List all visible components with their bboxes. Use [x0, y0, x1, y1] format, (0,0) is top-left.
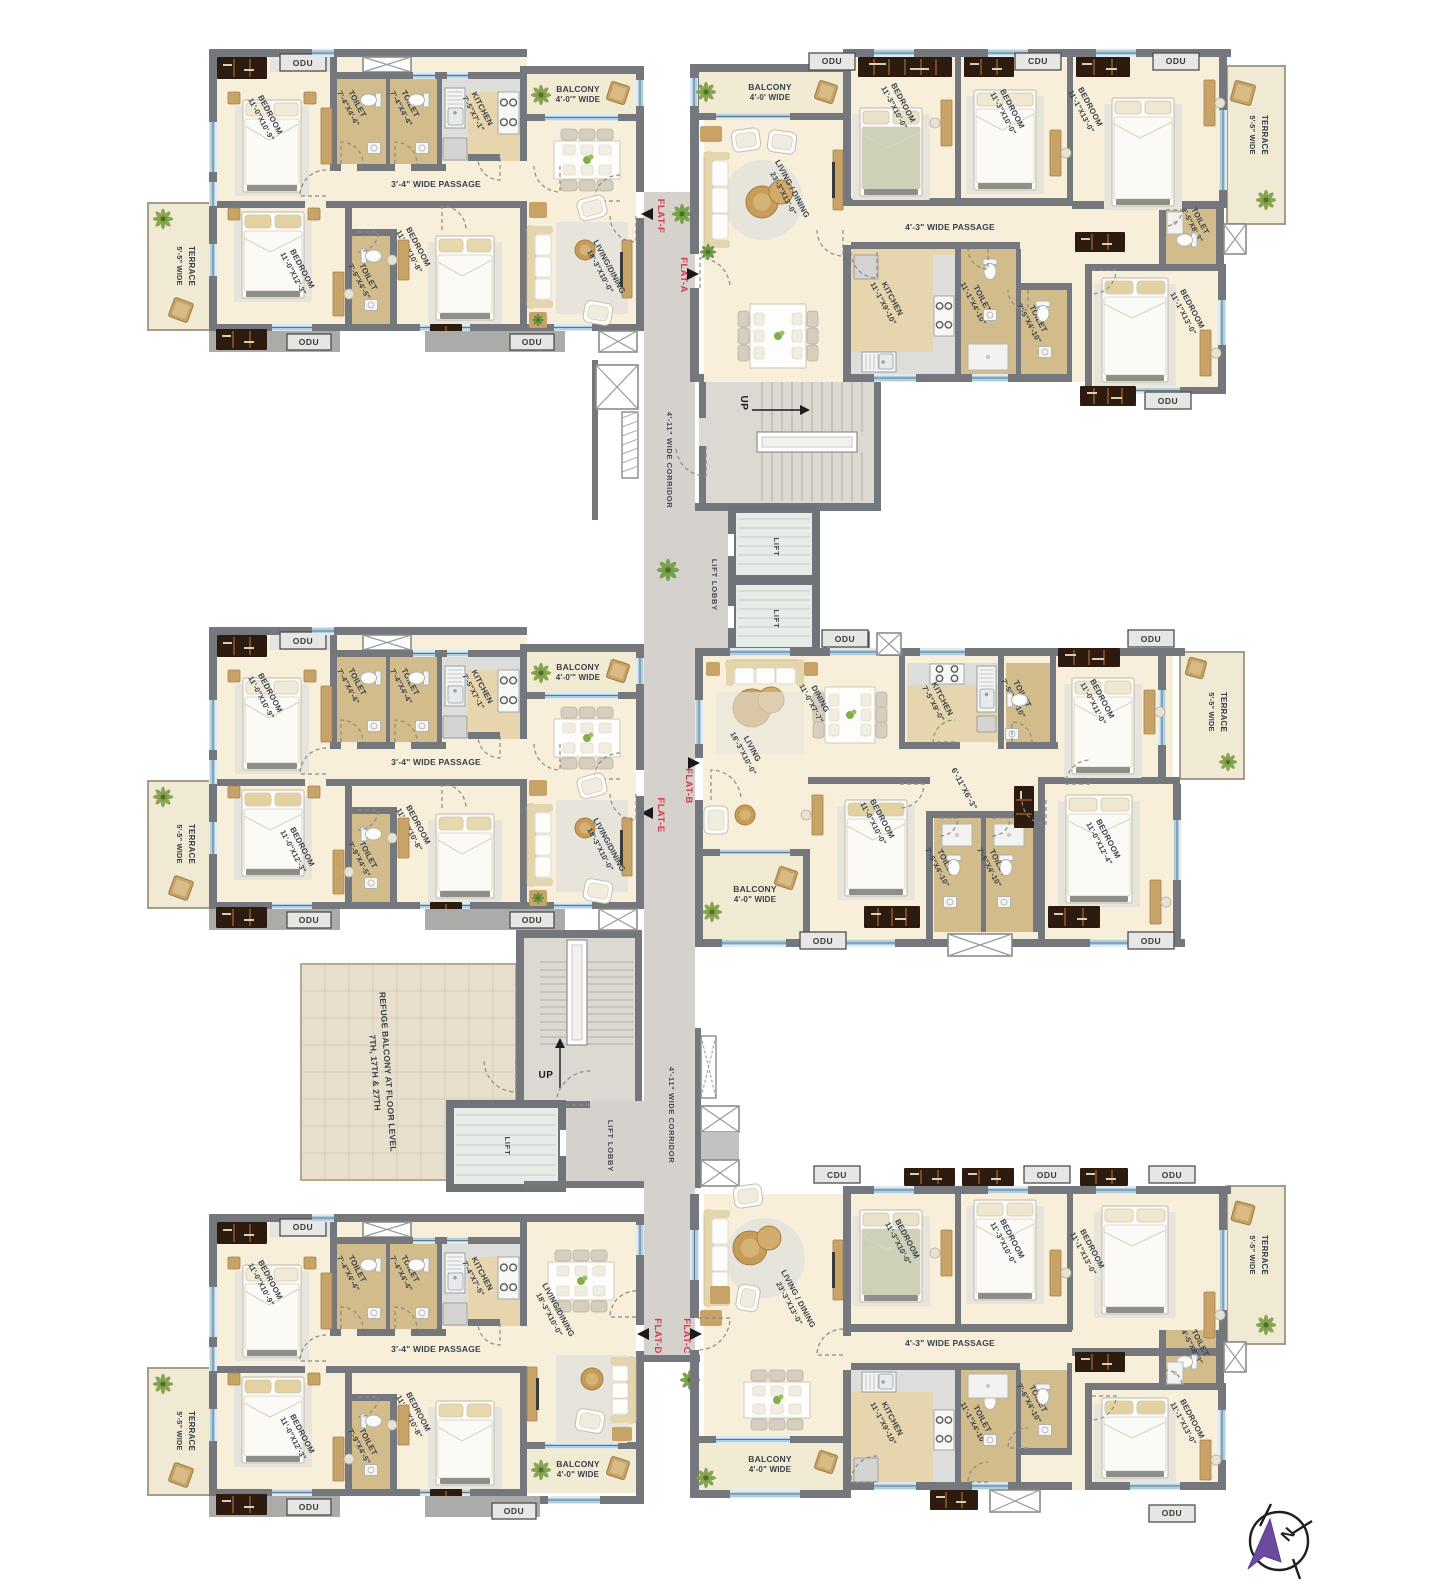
svg-text:3'-4" WIDE PASSAGE: 3'-4" WIDE PASSAGE: [391, 179, 481, 189]
svg-text:BALCONY: BALCONY: [556, 84, 600, 94]
svg-text:3'-4" WIDE PASSAGE: 3'-4" WIDE PASSAGE: [391, 1344, 481, 1354]
svg-text:ODU: ODU: [522, 337, 542, 347]
svg-text:5'-5" WIDE: 5'-5" WIDE: [1248, 115, 1257, 154]
svg-text:5'-5" WIDE: 5'-5" WIDE: [1207, 692, 1216, 731]
svg-text:LIFT LOBBY: LIFT LOBBY: [710, 559, 719, 611]
svg-text:5'-5" WIDE: 5'-5" WIDE: [175, 1411, 184, 1450]
svg-text:ODU: ODU: [299, 915, 319, 925]
svg-text:TERRACE: TERRACE: [187, 824, 196, 865]
svg-text:4'-0" WIDE: 4'-0" WIDE: [749, 1465, 792, 1474]
svg-text:ODU: ODU: [293, 1222, 313, 1232]
svg-text:BALCONY: BALCONY: [556, 662, 600, 672]
svg-text:ODU: ODU: [293, 636, 313, 646]
svg-text:4'-11" WIDE CORRIDOR: 4'-11" WIDE CORRIDOR: [665, 412, 674, 509]
svg-text:BALCONY: BALCONY: [556, 1459, 600, 1469]
svg-text:4'-11" WIDE CORRIDOR: 4'-11" WIDE CORRIDOR: [667, 1067, 676, 1164]
svg-text:4'-3" WIDE PASSAGE: 4'-3" WIDE PASSAGE: [905, 222, 995, 232]
svg-text:ODU: ODU: [299, 1502, 319, 1512]
svg-text:FLAT-E: FLAT-E: [655, 798, 666, 833]
svg-text:LIFT: LIFT: [772, 537, 781, 556]
svg-text:BALCONY: BALCONY: [733, 884, 777, 894]
svg-text:4'-3" WIDE PASSAGE: 4'-3" WIDE PASSAGE: [905, 1338, 995, 1348]
svg-text:UP: UP: [738, 396, 749, 411]
svg-text:4'-0'" WIDE: 4'-0'" WIDE: [556, 673, 601, 682]
svg-text:ODU: ODU: [504, 1506, 524, 1516]
svg-text:ODU: ODU: [1141, 634, 1161, 644]
svg-text:4'-0" WIDE: 4'-0" WIDE: [734, 895, 777, 904]
svg-text:5'-5" WIDE: 5'-5" WIDE: [1248, 1235, 1257, 1274]
svg-text:FLAT-D: FLAT-D: [652, 1318, 663, 1353]
svg-text:4'-0'" WIDE: 4'-0'" WIDE: [556, 95, 601, 104]
svg-text:ODU: ODU: [822, 56, 842, 66]
svg-text:FLAT-B: FLAT-B: [683, 768, 694, 803]
svg-text:TERRACE: TERRACE: [1260, 1235, 1269, 1276]
svg-text:4'-0' WIDE: 4'-0' WIDE: [750, 93, 791, 102]
svg-text:ODU: ODU: [522, 915, 542, 925]
svg-text:ODU: ODU: [299, 337, 319, 347]
svg-text:TERRACE: TERRACE: [1219, 692, 1228, 733]
svg-text:BALCONY: BALCONY: [748, 82, 792, 92]
svg-text:4'-0" WIDE: 4'-0" WIDE: [557, 1470, 600, 1479]
svg-text:ODU: ODU: [1158, 396, 1178, 406]
svg-text:ODU: ODU: [1162, 1508, 1182, 1518]
svg-text:TERRACE: TERRACE: [1260, 115, 1269, 156]
svg-text:UP: UP: [539, 1070, 554, 1081]
svg-text:LIFT LOBBY: LIFT LOBBY: [606, 1120, 615, 1172]
svg-text:CDU: CDU: [1028, 56, 1048, 66]
svg-text:TERRACE: TERRACE: [187, 246, 196, 287]
svg-text:ODU: ODU: [813, 936, 833, 946]
svg-text:BALCONY: BALCONY: [748, 1454, 792, 1464]
svg-text:5'-5" WIDE: 5'-5" WIDE: [175, 824, 184, 863]
svg-text:3'-4" WIDE PASSAGE: 3'-4" WIDE PASSAGE: [391, 757, 481, 767]
svg-text:FLAT-F: FLAT-F: [655, 199, 666, 233]
svg-text:LIFT: LIFT: [772, 609, 781, 628]
svg-text:ODU: ODU: [1166, 56, 1186, 66]
svg-text:TERRACE: TERRACE: [187, 1411, 196, 1452]
svg-text:LIFT: LIFT: [503, 1136, 512, 1155]
svg-text:ODU: ODU: [835, 634, 855, 644]
svg-text:ODU: ODU: [293, 58, 313, 68]
svg-text:CDU: CDU: [827, 1170, 847, 1180]
svg-text:5'-5" WIDE: 5'-5" WIDE: [175, 246, 184, 285]
svg-text:ODU: ODU: [1141, 936, 1161, 946]
svg-text:ODU: ODU: [1162, 1170, 1182, 1180]
svg-text:ODU: ODU: [1037, 1170, 1057, 1180]
